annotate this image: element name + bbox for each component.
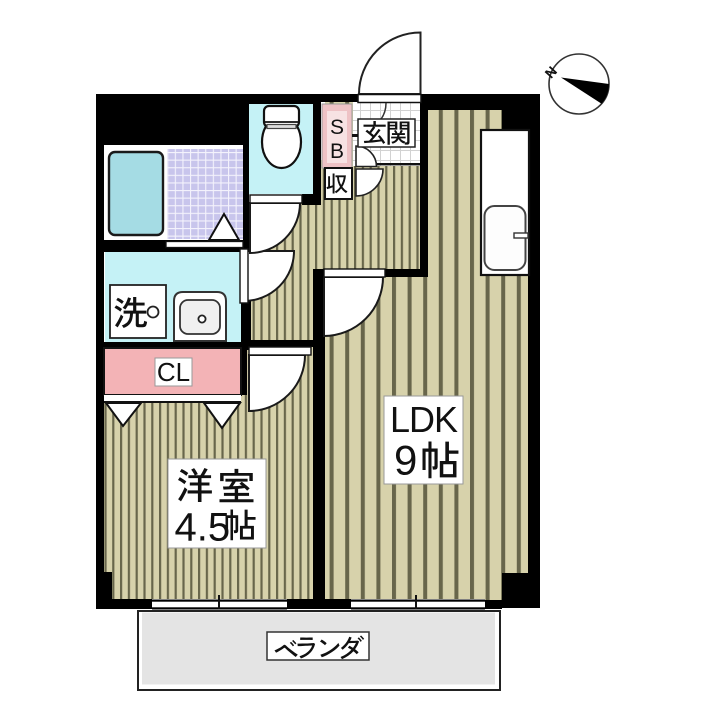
- svg-text:CL: CL: [157, 357, 190, 387]
- svg-text:4.5: 4.5: [175, 506, 231, 550]
- svg-text:B: B: [330, 140, 344, 163]
- svg-text:9: 9: [394, 437, 417, 484]
- svg-text:S: S: [330, 116, 344, 139]
- svg-text:LDK: LDK: [390, 399, 458, 440]
